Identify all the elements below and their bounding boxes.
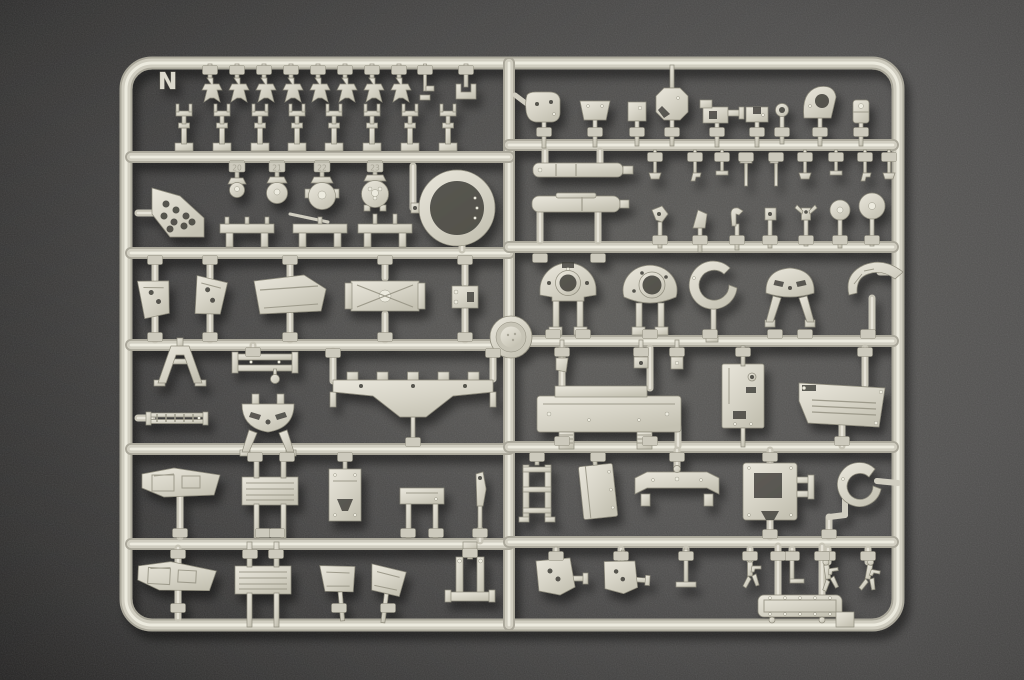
- part-number-tab: [243, 550, 258, 559]
- part-number-tab: [854, 128, 869, 137]
- part-number-tab: [634, 348, 649, 357]
- part-number-tab: [173, 529, 188, 538]
- part-number-tab: [257, 66, 272, 75]
- part-number-tab: [813, 128, 828, 137]
- part-number-tab: [688, 153, 703, 162]
- sprue-hub-logo-mark: [507, 334, 509, 336]
- part-number-tab: [459, 66, 474, 75]
- part-number-tab: [458, 333, 473, 342]
- sprue-part-tube: [533, 163, 633, 177]
- part-number-tab: [829, 153, 844, 162]
- sprue-part-xbox: [345, 281, 425, 311]
- part-number-tab: [230, 66, 245, 75]
- part-number-tab: [332, 604, 347, 613]
- part-number-tab: [171, 550, 186, 559]
- part-number-tab: [283, 256, 298, 265]
- part-number-tab: [537, 128, 552, 137]
- part-number-tab: [630, 128, 645, 137]
- part-number-tab: [401, 529, 416, 538]
- sprue-letter: N: [158, 69, 177, 95]
- sprue-part-ribwedge: [799, 383, 885, 427]
- sprue-hub-logo-mark: [512, 339, 514, 341]
- part-number-tab: [763, 453, 778, 462]
- part-number-tab: [555, 437, 570, 446]
- part-number-tab: [798, 153, 813, 162]
- part-number-tab: [549, 552, 564, 561]
- part-number-tab: [614, 552, 629, 561]
- part-number-tab: [750, 128, 765, 137]
- part-number-tab: [591, 453, 606, 462]
- sprue-part-tube_b: [532, 193, 629, 212]
- part-number-tab: [365, 66, 380, 75]
- part-number-tab: [835, 437, 850, 446]
- part-number-tab: [775, 128, 790, 137]
- part-number-tab: [763, 530, 778, 539]
- part-number-tab: [463, 549, 478, 558]
- part-number-tab: [280, 453, 295, 462]
- part-number-tab: [256, 529, 271, 538]
- part-number-tab: [653, 236, 668, 245]
- part-number-tab: [861, 552, 876, 561]
- part-number-tab: [530, 453, 545, 462]
- part-number-tab: [882, 153, 897, 162]
- part-number-tab: [203, 66, 218, 75]
- part-number-tab: [148, 256, 163, 265]
- part-number-label: 23: [370, 164, 380, 173]
- part-number-tab: [670, 348, 685, 357]
- part-number-tab: [284, 66, 299, 75]
- part-number-tab: [591, 254, 606, 263]
- part-number-tab: [283, 333, 298, 342]
- sprue-part-hladder: [519, 455, 555, 522]
- part-number-tab: [533, 254, 548, 263]
- part-number-tab: [203, 256, 218, 265]
- part-number-tab: [771, 552, 786, 561]
- part-number-label: 20: [232, 164, 242, 173]
- part-number-tab: [861, 330, 876, 339]
- part-number-tab: [588, 128, 603, 137]
- part-number-tab: [429, 529, 444, 538]
- part-number-tab: [736, 348, 751, 357]
- part-number-tab: [648, 153, 663, 162]
- part-number-tab: [270, 529, 285, 538]
- part-number-tab: [248, 453, 263, 462]
- part-number-tab: [833, 236, 848, 245]
- sprue-part-sqpad: [836, 612, 854, 627]
- part-number-tab: [246, 348, 261, 357]
- sprue-part-smallbracket: [452, 286, 478, 308]
- part-number-tab: [311, 66, 326, 75]
- part-number-tab: [798, 330, 813, 339]
- part-number-tab: [473, 529, 488, 538]
- part-number-tab: [576, 330, 591, 339]
- part-number-tab: [406, 438, 421, 447]
- part-number-tab: [381, 604, 396, 613]
- part-number-tab: [743, 552, 758, 561]
- part-number-tab: [799, 236, 814, 245]
- part-number-tab: [546, 330, 561, 339]
- part-number-tab: [203, 333, 218, 342]
- part-number-tab: [338, 453, 353, 462]
- part-number-tab: [739, 153, 754, 162]
- part-number-tab: [643, 330, 658, 339]
- sprue-hub-logo-mark: [514, 333, 516, 335]
- sprue-hub-boss: [501, 327, 522, 348]
- part-number-tab: [693, 236, 708, 245]
- part-number-tab: [822, 530, 837, 539]
- part-number-tab: [269, 550, 284, 559]
- part-number-tab: [865, 236, 880, 245]
- part-number-tab: [643, 437, 658, 446]
- part-number-tab: [769, 153, 784, 162]
- part-number-tab: [703, 330, 718, 339]
- part-number-tab: [486, 349, 501, 358]
- part-number-tab: [715, 153, 730, 162]
- part-number-tab: [730, 236, 745, 245]
- sprue-photo: 20212223 N: [0, 0, 1024, 680]
- part-number-tab: [418, 66, 433, 75]
- part-number-label: 22: [317, 164, 327, 173]
- part-number-tab: [378, 333, 393, 342]
- part-number-tab: [785, 552, 800, 561]
- part-number-tab: [858, 348, 873, 357]
- part-number-tab: [378, 256, 393, 265]
- part-number-tab: [392, 66, 407, 75]
- part-number-tab: [326, 349, 341, 358]
- part-number-tab: [858, 153, 873, 162]
- part-number-tab: [148, 333, 163, 342]
- part-number-tab: [768, 330, 783, 339]
- part-number-tab: [171, 604, 186, 613]
- part-number-tab: [338, 66, 353, 75]
- part-number-tab: [458, 256, 473, 265]
- part-number-tab: [815, 552, 830, 561]
- part-number-label: 21: [272, 164, 282, 173]
- part-number-tab: [710, 128, 725, 137]
- part-number-tab: [670, 453, 685, 462]
- part-number-tab: [665, 128, 680, 137]
- part-number-tab: [763, 236, 778, 245]
- part-number-tab: [679, 552, 694, 561]
- photo-canvas: 20212223 N: [0, 0, 1024, 680]
- part-number-tab: [555, 348, 570, 357]
